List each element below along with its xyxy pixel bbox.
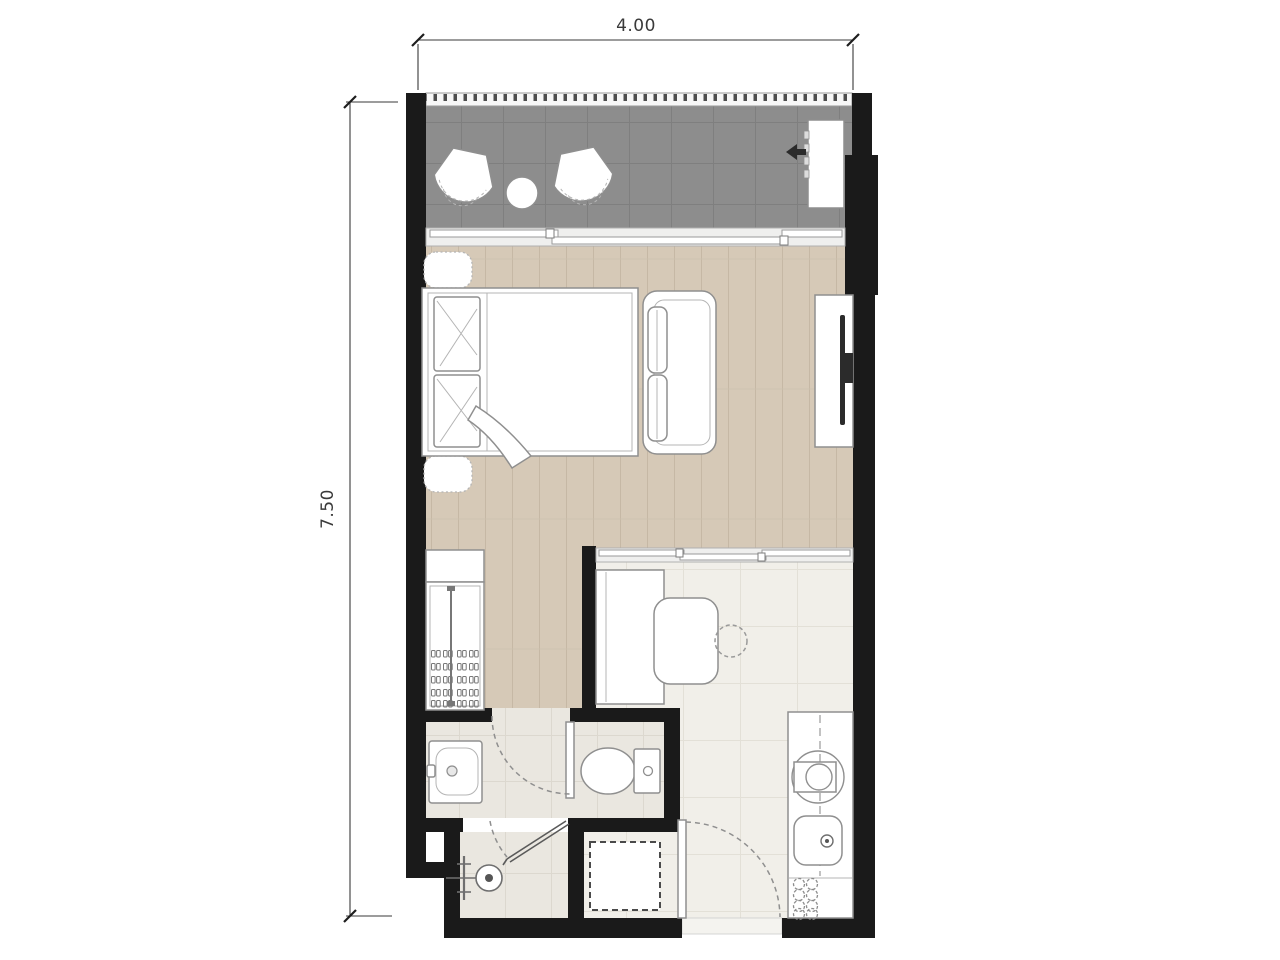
bench-sofa: [643, 291, 716, 454]
bedside-rug-bottom: [424, 456, 472, 492]
faucet: [427, 765, 435, 777]
tv-mount: [845, 353, 853, 383]
toilet: [581, 748, 660, 794]
wall-right-top: [852, 93, 872, 155]
bed: [422, 288, 638, 468]
rail-cap: [447, 586, 455, 591]
slider-handle: [546, 229, 554, 238]
entry-threshold: [682, 918, 782, 934]
wall-partition-stub: [582, 546, 596, 716]
kitchen-sink: [794, 816, 842, 865]
wall-bottom-right: [782, 918, 875, 938]
washer-space: [590, 842, 660, 910]
wall-left: [406, 93, 426, 878]
pillow: [434, 297, 480, 371]
dim-width-label: 4.00: [616, 16, 656, 36]
balcony-table: [506, 177, 538, 209]
study-glass-partition: [596, 548, 853, 562]
desk-chair: [654, 598, 718, 684]
shower-drain-center: [485, 874, 493, 882]
wardrobe: [426, 550, 484, 710]
balcony-floor: [426, 106, 852, 228]
kitchen: [788, 712, 853, 920]
wall-right-main: [853, 295, 875, 938]
door-leaf: [566, 722, 574, 798]
balcony-railing: [426, 93, 852, 106]
wall-nook-top: [568, 818, 680, 832]
slider-handle: [780, 236, 788, 245]
slider-handle: [676, 549, 683, 557]
wall-bath-shower-divider: [406, 818, 463, 832]
dim-height-label: 7.50: [318, 489, 338, 529]
slider-handle: [758, 553, 765, 561]
wall-bottom-left: [444, 918, 682, 938]
balcony-sliding-door: [426, 228, 845, 246]
bedside-rug-top: [424, 252, 472, 288]
bathroom-sink: [427, 741, 482, 803]
drain: [447, 766, 457, 776]
bathroom-door-threshold: [492, 708, 570, 722]
tv-icon: [840, 315, 845, 425]
door-leaf: [678, 820, 686, 918]
wall-right-block: [845, 155, 878, 295]
cabinet: [426, 550, 484, 582]
wall-shower-nook-divider: [568, 818, 584, 938]
wall-bath-right: [664, 708, 680, 820]
floor-plan: 4.00 7.50: [0, 0, 1280, 960]
tv-console: [815, 295, 853, 447]
floor-plan-drawing: 4.00 7.50: [0, 0, 1280, 960]
wall-shaft: [444, 830, 460, 938]
